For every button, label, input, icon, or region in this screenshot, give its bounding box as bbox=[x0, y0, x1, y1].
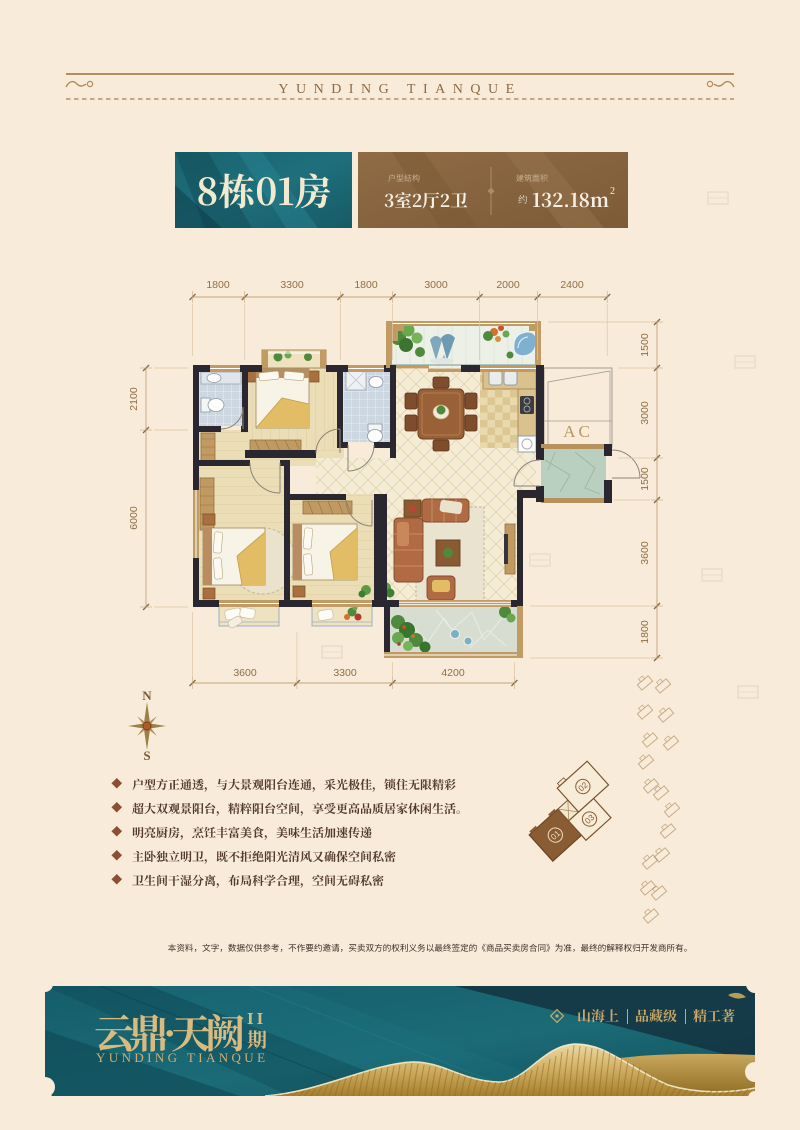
svg-text:2400: 2400 bbox=[560, 279, 584, 291]
svg-text:II: II bbox=[247, 1009, 266, 1028]
svg-text:1800: 1800 bbox=[639, 620, 651, 644]
svg-text:6000: 6000 bbox=[128, 506, 140, 530]
svg-text:1800: 1800 bbox=[354, 279, 378, 291]
svg-text:2100: 2100 bbox=[128, 387, 140, 411]
svg-text:2: 2 bbox=[610, 186, 615, 197]
svg-text:1500: 1500 bbox=[639, 333, 651, 357]
svg-text:1800: 1800 bbox=[206, 279, 230, 291]
svg-text:AC: AC bbox=[563, 422, 593, 441]
svg-text:YUNDING TIANQUE: YUNDING TIANQUE bbox=[278, 82, 521, 97]
svg-text:3600: 3600 bbox=[233, 667, 257, 679]
svg-text:4200: 4200 bbox=[441, 667, 465, 679]
svg-text:1500: 1500 bbox=[639, 467, 651, 491]
svg-text:3300: 3300 bbox=[280, 279, 304, 291]
svg-text:YUNDING TIANQUE: YUNDING TIANQUE bbox=[96, 1050, 268, 1065]
svg-text:S: S bbox=[143, 748, 150, 763]
svg-text:3000: 3000 bbox=[424, 279, 448, 291]
svg-text:3000: 3000 bbox=[639, 401, 651, 425]
svg-text:3600: 3600 bbox=[639, 541, 651, 565]
svg-text:N: N bbox=[142, 688, 152, 703]
svg-text:2000: 2000 bbox=[496, 279, 520, 291]
svg-text:3300: 3300 bbox=[333, 667, 357, 679]
